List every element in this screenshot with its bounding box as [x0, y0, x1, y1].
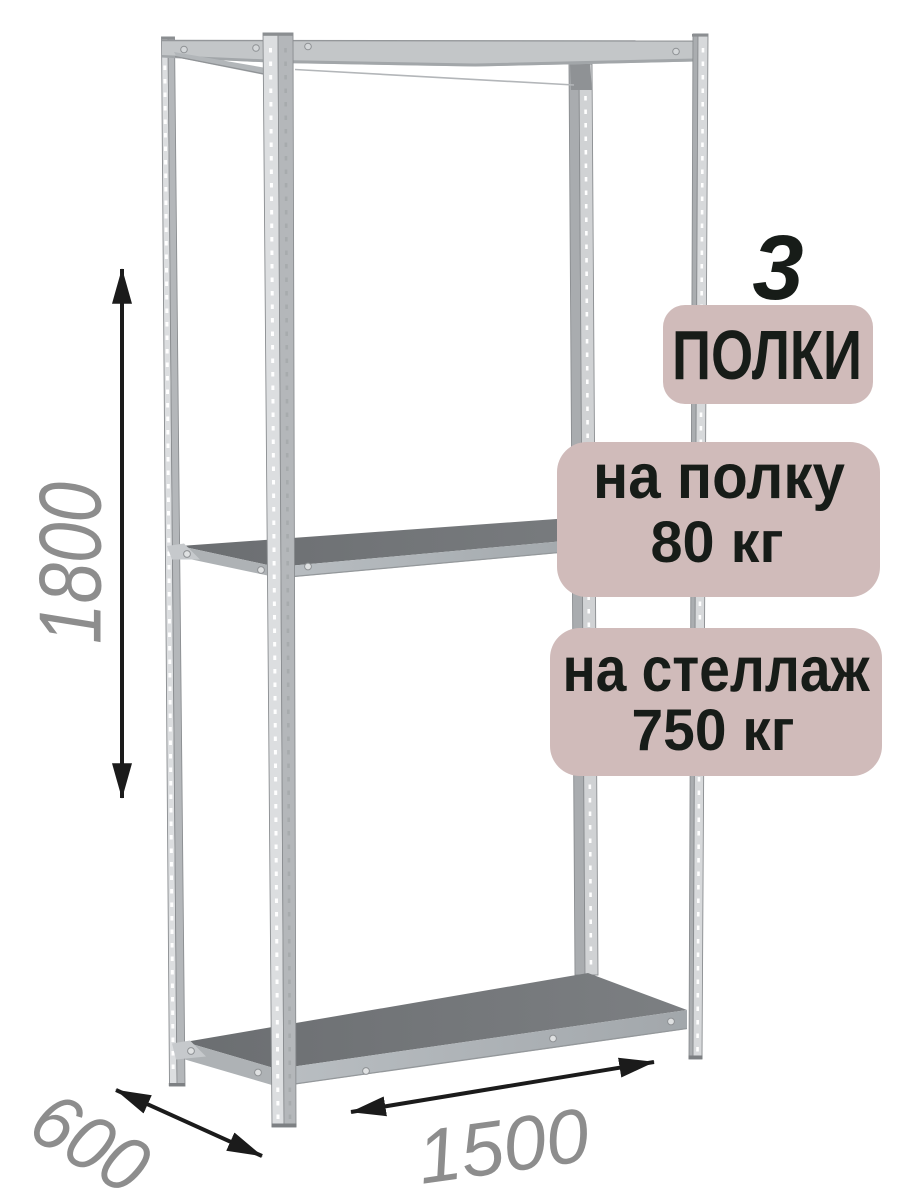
svg-text:80 кг: 80 кг	[651, 510, 784, 575]
svg-text:ПОЛКИ: ПОЛКИ	[672, 316, 862, 394]
svg-text:на стеллаж: на стеллаж	[563, 635, 871, 705]
svg-text:1800: 1800	[20, 482, 119, 644]
svg-text:600: 600	[16, 1074, 164, 1200]
svg-text:750 кг: 750 кг	[632, 698, 795, 763]
svg-text:3: 3	[752, 217, 803, 319]
svg-text:на полку: на полку	[593, 442, 845, 512]
svg-text:1500: 1500	[412, 1093, 594, 1200]
